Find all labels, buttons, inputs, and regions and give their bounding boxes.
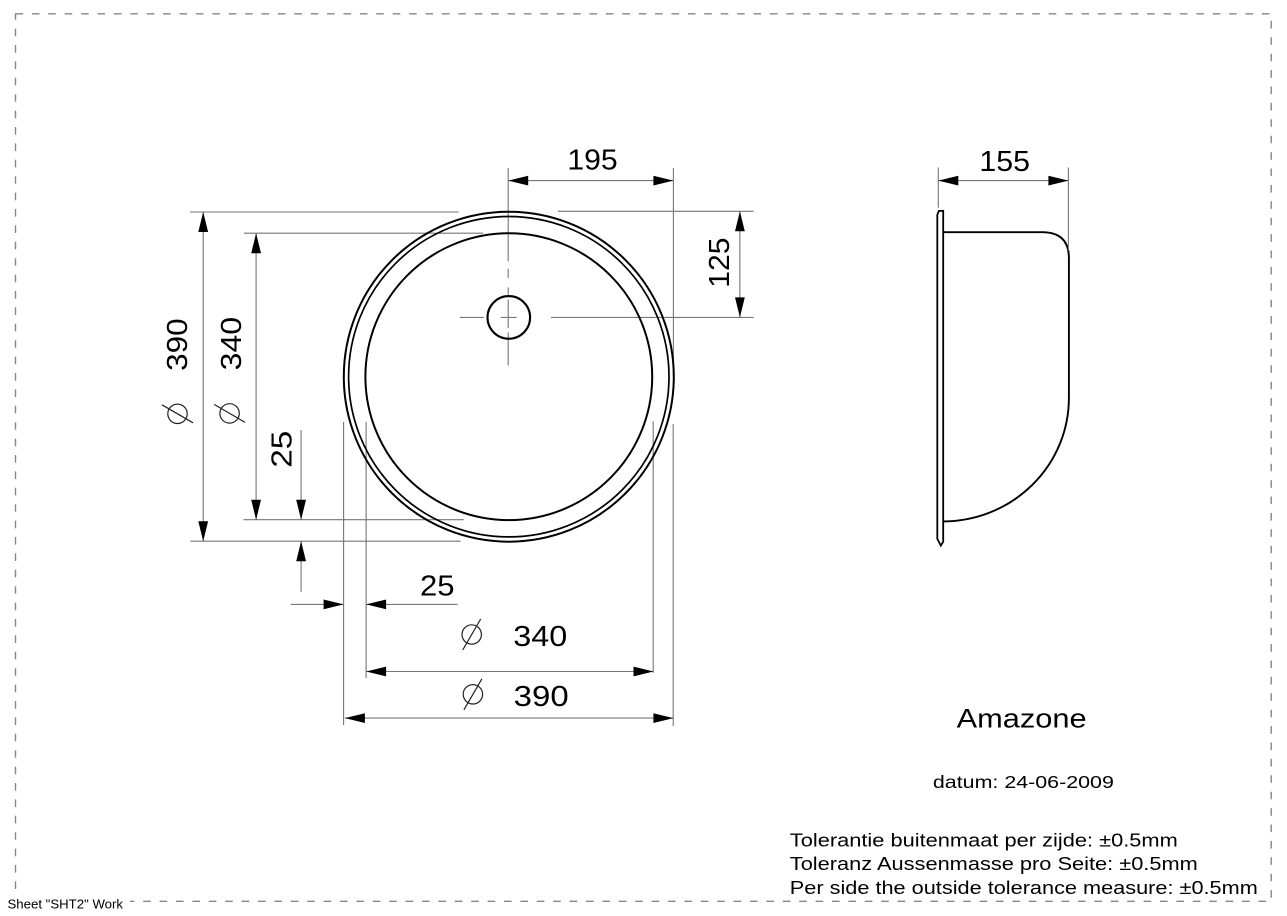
svg-text:25: 25 (267, 431, 299, 468)
svg-text:datum: 24-06-2009: datum: 24-06-2009 (933, 772, 1114, 792)
svg-text:25: 25 (420, 570, 455, 602)
svg-text:Amazone: Amazone (957, 703, 1087, 733)
svg-text:Per side the outside tolerance: Per side the outside tolerance measure: … (790, 878, 1258, 898)
svg-text:Tolerantie buitenmaat per zijd: Tolerantie buitenmaat per zijde: ±0.5mm (790, 830, 1178, 850)
svg-text:340: 340 (513, 621, 567, 653)
svg-text:340: 340 (216, 317, 248, 371)
svg-text:390: 390 (162, 318, 194, 371)
svg-text:155: 155 (979, 146, 1030, 178)
svg-text:Sheet "SHT2" Work: Sheet "SHT2" Work (8, 897, 124, 911)
svg-text:125: 125 (704, 237, 736, 287)
svg-text:195: 195 (567, 144, 617, 176)
svg-text:Toleranz Aussenmasse pro Seite: Toleranz Aussenmasse pro Seite: ±0.5mm (790, 854, 1198, 874)
svg-text:390: 390 (514, 681, 569, 713)
